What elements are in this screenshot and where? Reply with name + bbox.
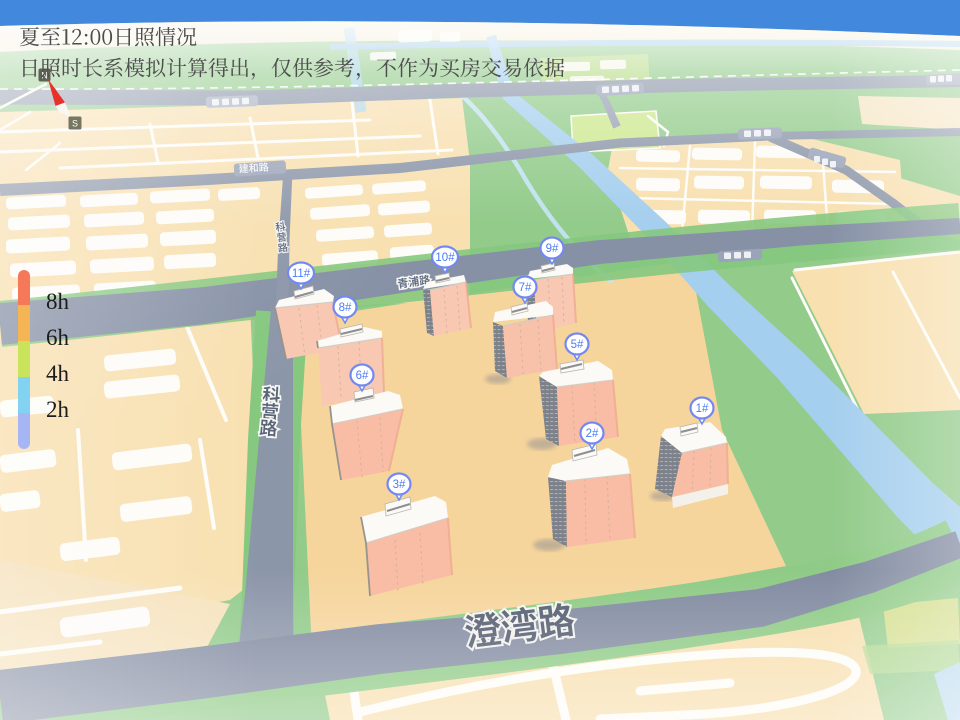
svg-text:2#: 2#	[586, 428, 599, 440]
svg-text:1#: 1#	[696, 403, 709, 415]
svg-text:S: S	[72, 119, 78, 129]
svg-text:11#: 11#	[292, 268, 311, 280]
svg-text:2h: 2h	[46, 397, 70, 422]
svg-text:8#: 8#	[339, 302, 352, 314]
svg-text:6#: 6#	[356, 370, 369, 382]
svg-text:3#: 3#	[393, 479, 406, 491]
svg-text:9#: 9#	[546, 243, 559, 255]
svg-text:10#: 10#	[435, 252, 455, 264]
svg-text:6h: 6h	[46, 325, 70, 350]
svg-text:7#: 7#	[519, 282, 532, 294]
svg-text:4h: 4h	[46, 361, 70, 386]
svg-text:5#: 5#	[571, 339, 584, 351]
svg-text:8h: 8h	[46, 289, 70, 314]
